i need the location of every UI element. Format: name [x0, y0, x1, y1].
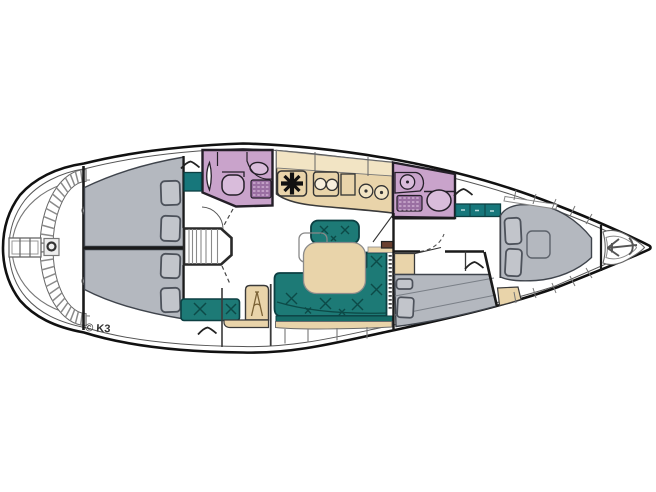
svg-text:© K3: © K3 — [85, 322, 111, 335]
